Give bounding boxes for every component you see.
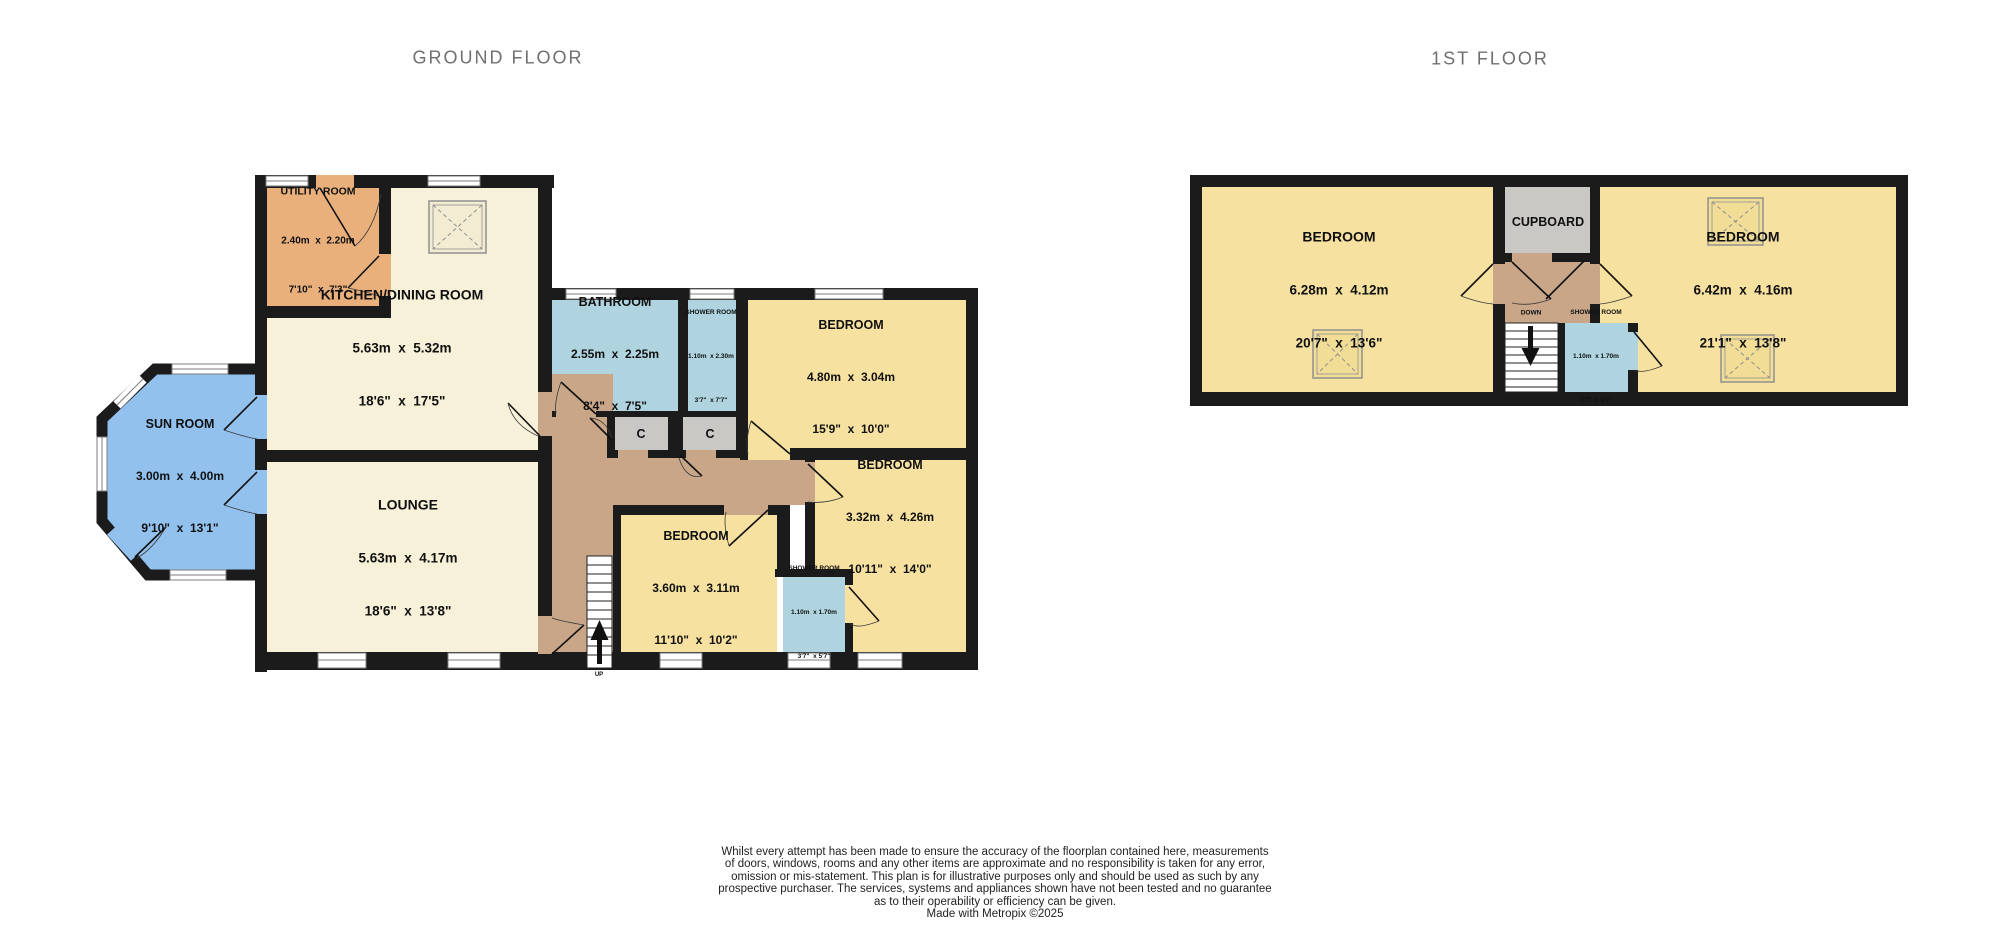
first-floor-title: 1ST FLOOR <box>1431 49 1549 70</box>
cupboard-1-label: C <box>636 427 645 441</box>
disclaimer-line: of doors, windows, rooms and any other i… <box>605 858 1385 870</box>
metropix-credit: Made with Metropix ©2025 <box>605 908 1385 920</box>
lounge-label: LOUNGE 5.63m x 4.17m 18'6" x 13'8" <box>358 461 457 656</box>
window <box>97 437 107 491</box>
floorplan-drawing <box>0 0 2000 928</box>
shower-room-top-label: SHOWER ROOM 1.10m x 2.30m 3'7" x 7'7" <box>685 273 736 441</box>
bedroom-3-label: BEDROOM 3.60m x 3.11m 11'10" x 10'2" <box>652 492 739 684</box>
sun-room-label: SUN ROOM 3.00m x 4.00m 9'10" x 13'1" <box>136 380 224 572</box>
window <box>172 364 228 374</box>
bathroom-label: BATHROOM 2.55m x 2.25m 8'4" x 7'5" <box>571 258 659 450</box>
cupboard-label: CUPBOARD <box>1512 215 1584 229</box>
disclaimer: Whilst every attempt has been made to en… <box>605 846 1385 920</box>
skylight-icon <box>429 201 486 253</box>
shower-room-first-label: SHOWER ROOM 1.10m x 1.70m 3'7" x 5'7" <box>1570 273 1621 441</box>
bedroom-right-label: BEDROOM 6.42m x 4.16m 21'1" x 13'8" <box>1693 193 1792 388</box>
kitchen-label: KITCHEN/DINING ROOM 5.63m x 5.32m 18'6" … <box>321 251 484 446</box>
disclaimer-line: prospective purchaser. The services, sys… <box>605 883 1385 895</box>
cupboard-2-label: C <box>705 427 714 441</box>
ground-floor-title: GROUND FLOOR <box>412 48 583 69</box>
disclaimer-line: omission or mis-statement. This plan is … <box>605 871 1385 883</box>
bedroom-left-label: BEDROOM 6.28m x 4.12m 20'7" x 13'6" <box>1289 193 1388 388</box>
bedroom-2-label: BEDROOM 3.32m x 4.26m 10'11" x 14'0" <box>846 421 934 613</box>
stairs-down <box>1505 323 1558 392</box>
stairs-down-label: DOWN <box>1521 310 1542 317</box>
shower-room-bottom-label: SHOWER ROOM 1.10m x 1.70m 3'7" x 5'7" <box>788 529 839 697</box>
disclaimer-line: Whilst every attempt has been made to en… <box>605 846 1385 858</box>
floorplan-page: GROUND FLOOR 1ST FLOOR UTILITY ROOM 2.40… <box>0 0 2000 928</box>
disclaimer-line: as to their operability or efficiency ca… <box>605 896 1385 908</box>
stairs-up <box>587 556 612 668</box>
window <box>858 653 902 668</box>
stairs-up-label: UP <box>595 672 603 678</box>
window <box>428 176 480 186</box>
